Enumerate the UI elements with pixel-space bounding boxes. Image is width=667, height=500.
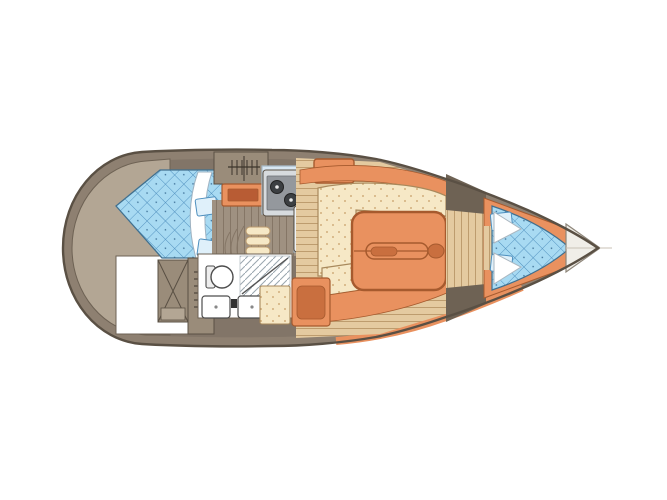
nav-seat-cushion: [260, 286, 290, 324]
saloon-table: [352, 212, 446, 290]
nav-seat: [292, 278, 330, 326]
toilet: [206, 266, 233, 288]
galley-hanging-locker: [214, 152, 268, 184]
galley-drawer-unit: [222, 184, 264, 206]
x-brace-locker: [158, 260, 188, 322]
v-berth-cabin: [484, 198, 612, 298]
yacht-floor-plan: [0, 0, 667, 500]
yacht-floor-plan-canvas: [0, 0, 667, 500]
bulkhead-walkway: [446, 208, 486, 290]
table-latch: [428, 244, 444, 258]
